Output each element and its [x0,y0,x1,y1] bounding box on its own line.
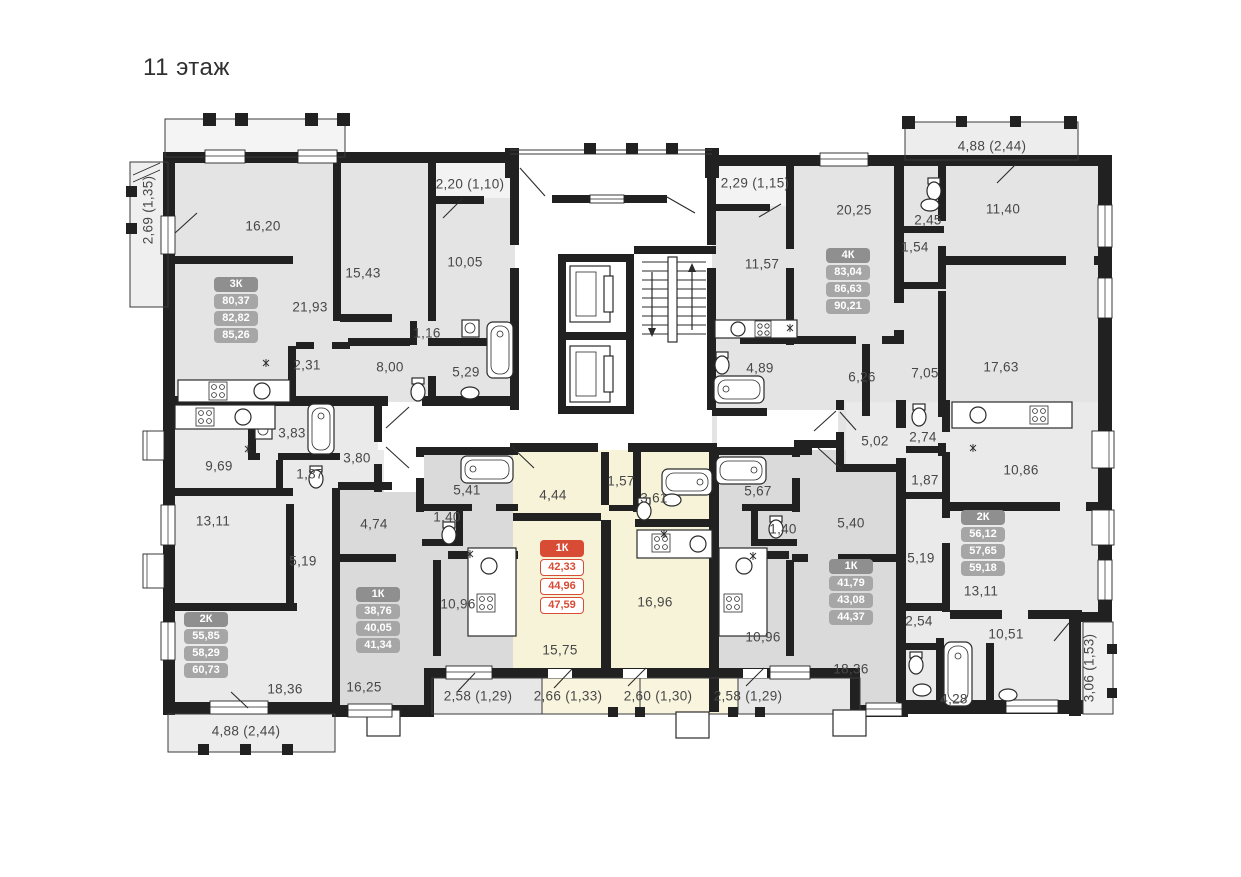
room-area-label: 2,60 (1,30) [624,689,693,704]
room-area-label: 6,26 [848,370,875,385]
room-area-label: 7,05 [911,366,938,381]
room-area-label: 4,28 [940,692,967,707]
room-area-label: 1,87 [296,467,323,482]
apartment-type: 1К [540,540,584,557]
floor-plan: 11 этаж [0,0,1241,877]
apartment-area-value: 44,96 [540,578,584,595]
apartment-type: 2К [184,612,228,627]
room-area-label: 2,29 (1,15) [721,176,790,191]
room-area-label: 13,11 [196,514,230,529]
room-area-label: 9,69 [205,459,232,474]
room-area-label: 10,96 [440,597,475,612]
label-layer: 16,2015,4310,052,20 (1,10)2,69 (1,35)21,… [0,0,1241,877]
apartment-card[interactable]: 2К56,1257,6559,18 [961,510,1005,576]
apartment-area-value: 55,85 [184,629,228,644]
apartment-area-value: 58,29 [184,646,228,661]
room-area-label: 1,57 [607,474,634,489]
room-area-label: 16,25 [346,680,381,695]
room-area-label: 8,00 [376,360,403,375]
room-area-label: 15,43 [345,266,380,281]
room-area-label: 17,63 [983,360,1018,375]
apartment-card[interactable]: 3К80,3782,8285,26 [214,277,258,343]
apartment-card[interactable]: 1К41,7943,0844,37 [829,559,873,625]
apartment-type: 3К [214,277,258,292]
apartment-area-value: 41,79 [829,576,873,591]
room-area-label: 4,88 (2,44) [212,724,281,739]
room-area-label: 2,69 (1,35) [141,176,156,245]
room-area-label: 4,74 [360,517,387,532]
room-area-label: 21,93 [292,300,327,315]
apartment-card[interactable]: 2К55,8558,2960,73 [184,612,228,678]
room-area-label: 11,57 [745,257,779,272]
room-area-label: 5,29 [452,365,479,380]
apartment-area-value: 38,76 [356,604,400,619]
apartment-area-value: 47,59 [540,597,584,614]
apartment-area-value: 59,18 [961,561,1005,576]
apartment-card[interactable]: 4К83,0486,6390,21 [826,248,870,314]
apartment-area-value: 86,63 [826,282,870,297]
room-area-label: 2,58 (1,29) [714,689,783,704]
apartment-type: 1К [829,559,873,574]
room-area-label: 4,88 (2,44) [958,139,1027,154]
room-area-label: 2,54 [905,614,932,629]
room-area-label: 5,41 [453,483,480,498]
room-area-label: 2,74 [909,430,936,445]
room-area-label: 10,86 [1003,463,1038,478]
room-area-label: 16,96 [637,595,672,610]
room-area-label: 18,36 [833,662,868,677]
room-area-label: 10,05 [447,255,482,270]
room-area-label: 15,75 [542,643,577,658]
apartment-area-value: 44,37 [829,610,873,625]
room-area-label: 3,80 [343,451,370,466]
room-area-label: 2,20 (1,10) [436,177,505,192]
room-area-label: 10,96 [745,630,780,645]
room-area-label: 2,66 (1,33) [534,689,603,704]
room-area-label: 5,67 [744,484,771,499]
room-area-label: 5,19 [289,554,316,569]
apartment-area-value: 90,21 [826,299,870,314]
apartment-area-value: 85,26 [214,328,258,343]
room-area-label: 5,40 [837,516,864,531]
room-area-label: 11,40 [986,202,1020,217]
room-area-label: 1,16 [413,326,440,341]
room-area-label: 3,83 [278,426,305,441]
room-area-label: 1,87 [911,473,938,488]
room-area-label: 5,19 [907,551,934,566]
room-area-label: 1,40 [769,522,796,537]
room-area-label: 16,20 [245,219,280,234]
apartment-type: 4К [826,248,870,263]
room-area-label: 13,11 [964,584,998,599]
room-area-label: 2,58 (1,29) [444,689,513,704]
room-area-label: 2,45 [914,213,941,228]
apartment-card[interactable]: 1К42,3344,9647,59 [540,540,584,614]
apartment-area-value: 83,04 [826,265,870,280]
room-area-label: 4,44 [539,488,566,503]
apartment-area-value: 41,34 [356,638,400,653]
apartment-type: 1К [356,587,400,602]
room-area-label: 2,31 [293,358,320,373]
apartment-area-value: 57,65 [961,544,1005,559]
apartment-area-value: 43,08 [829,593,873,608]
room-area-label: 20,25 [836,203,871,218]
apartment-area-value: 60,73 [184,663,228,678]
room-area-label: 10,51 [988,627,1023,642]
apartment-area-value: 42,33 [540,559,584,576]
room-area-label: 3,06 (1,53) [1082,634,1097,703]
apartment-area-value: 40,05 [356,621,400,636]
room-area-label: 1,40 [433,510,460,525]
room-area-label: 4,89 [746,361,773,376]
room-area-label: 18,36 [267,682,302,697]
room-area-label: 3,61 [640,491,667,506]
apartment-card[interactable]: 1К38,7640,0541,34 [356,587,400,653]
apartment-area-value: 80,37 [214,294,258,309]
room-area-label: 5,02 [861,434,888,449]
apartment-type: 2К [961,510,1005,525]
room-area-label: 1,54 [901,240,928,255]
apartment-area-value: 82,82 [214,311,258,326]
apartment-area-value: 56,12 [961,527,1005,542]
